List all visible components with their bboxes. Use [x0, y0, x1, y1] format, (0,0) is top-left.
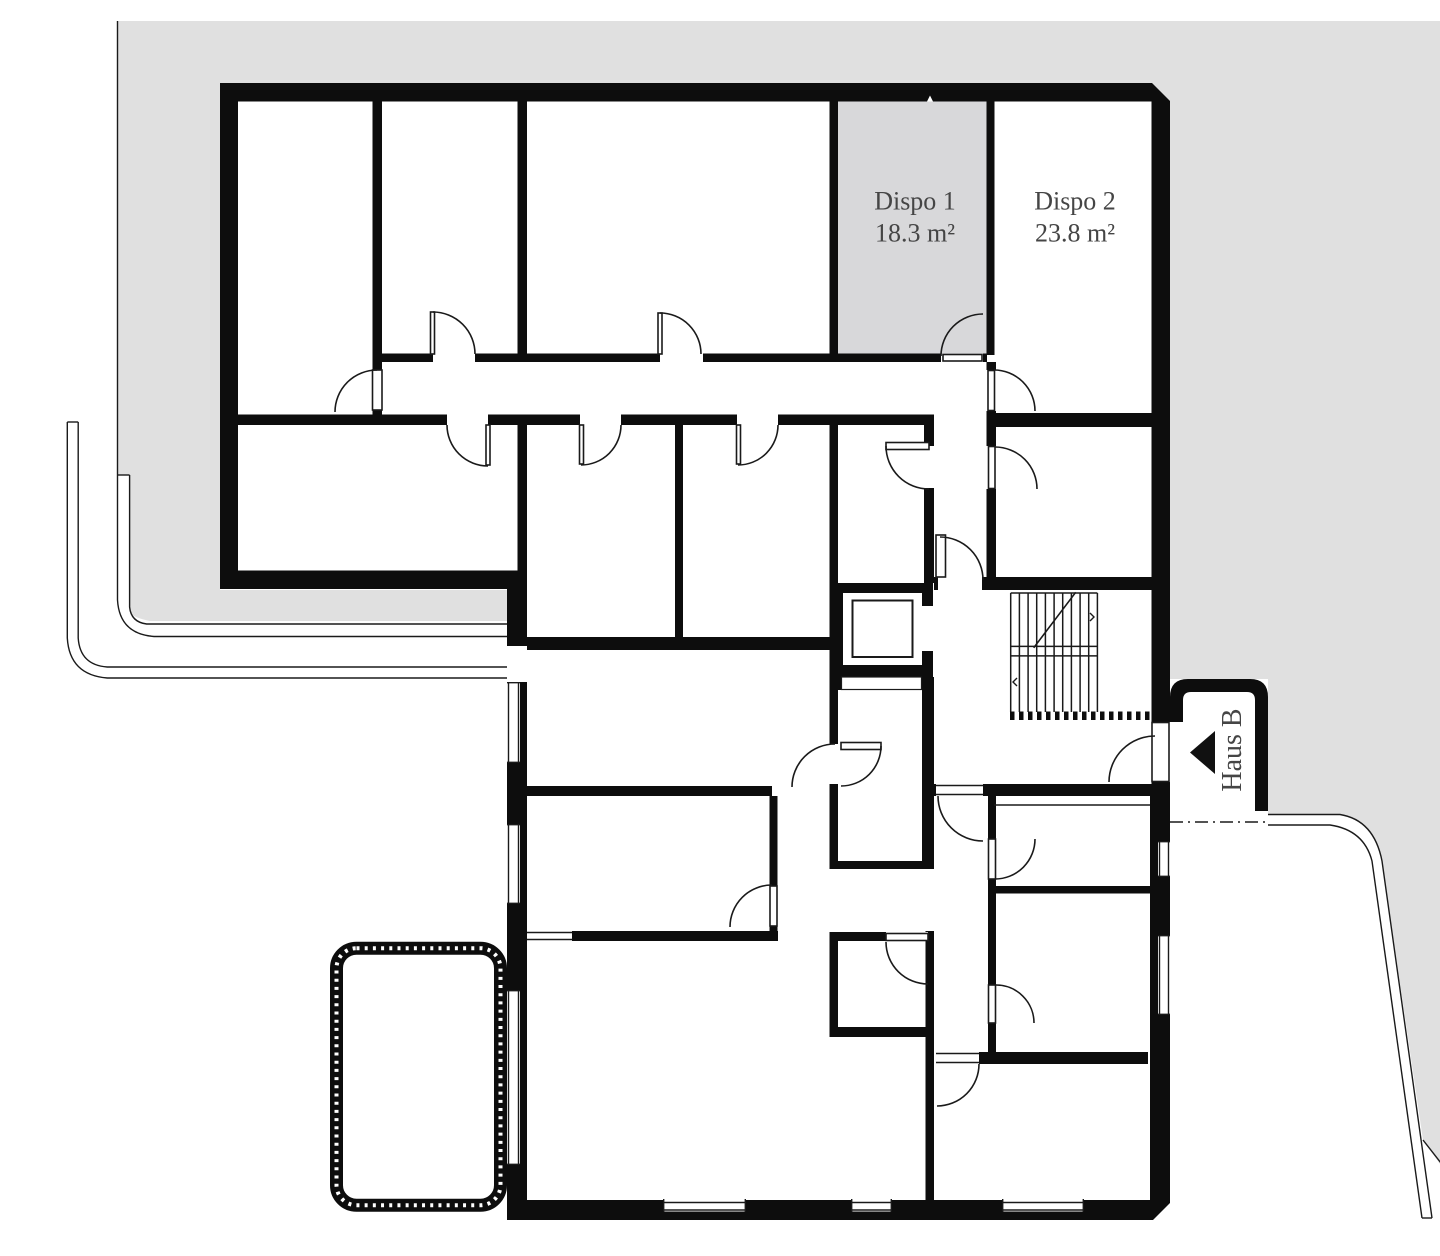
- svg-text:Dispo 2: Dispo 2: [1034, 187, 1116, 216]
- svg-text:23.8 m²: 23.8 m²: [1035, 219, 1115, 248]
- svg-text:Haus B: Haus B: [1217, 708, 1248, 791]
- svg-text:18.3 m²: 18.3 m²: [875, 219, 955, 248]
- svg-text:Dispo 1: Dispo 1: [874, 187, 956, 216]
